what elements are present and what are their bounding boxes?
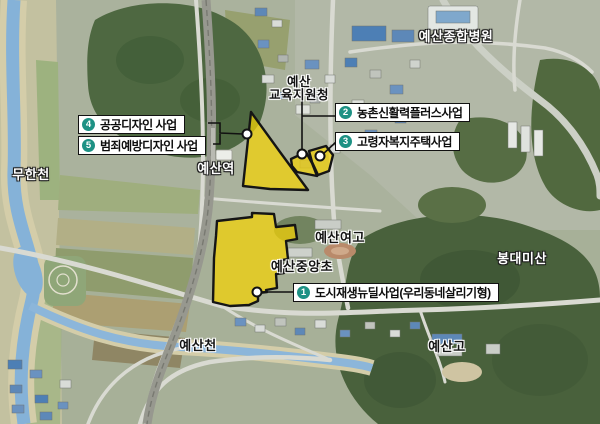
callout-crime-prevention-design-label: 범죄예방디자인 사업	[100, 137, 198, 154]
callout-crime-prevention-design: 5 범죄예방디자인 사업	[78, 136, 206, 155]
jungang-elementary-building	[288, 248, 312, 257]
anchor-dot-urban-renewal	[253, 288, 262, 297]
badge-4: 4	[82, 118, 95, 131]
callout-public-design: 4 공공디자인 사업	[78, 115, 185, 134]
map-imagery	[0, 0, 600, 424]
callout-urban-renewal-label: 도시재생뉴딜사업(우리동네살리기형)	[315, 284, 491, 301]
badge-1: 1	[297, 286, 310, 299]
callout-senior-housing-label: 고령자복지주택사업	[357, 133, 452, 150]
anchor-dot-rural-vitality	[298, 150, 307, 159]
anchor-dot-senior-housing	[316, 152, 325, 161]
anchor-dot-design-projects	[243, 130, 252, 139]
badge-2: 2	[339, 106, 352, 119]
satellite-map: 예산종합병원 예산 교육지원청 무한천 예산역 예산여고 예산중앙초 봉대미산 …	[0, 0, 600, 424]
callout-senior-housing: 3 고령자복지주택사업	[335, 132, 460, 151]
station-building	[216, 150, 232, 160]
callout-rural-vitality: 2 농촌신활력플러스사업	[335, 103, 470, 122]
callout-urban-renewal: 1 도시재생뉴딜사업(우리동네살리기형)	[293, 283, 499, 302]
callout-rural-vitality-label: 농촌신활력플러스사업	[357, 104, 462, 121]
badge-3: 3	[339, 135, 352, 148]
badge-5: 5	[82, 139, 95, 152]
callout-public-design-label: 공공디자인 사업	[100, 116, 177, 133]
